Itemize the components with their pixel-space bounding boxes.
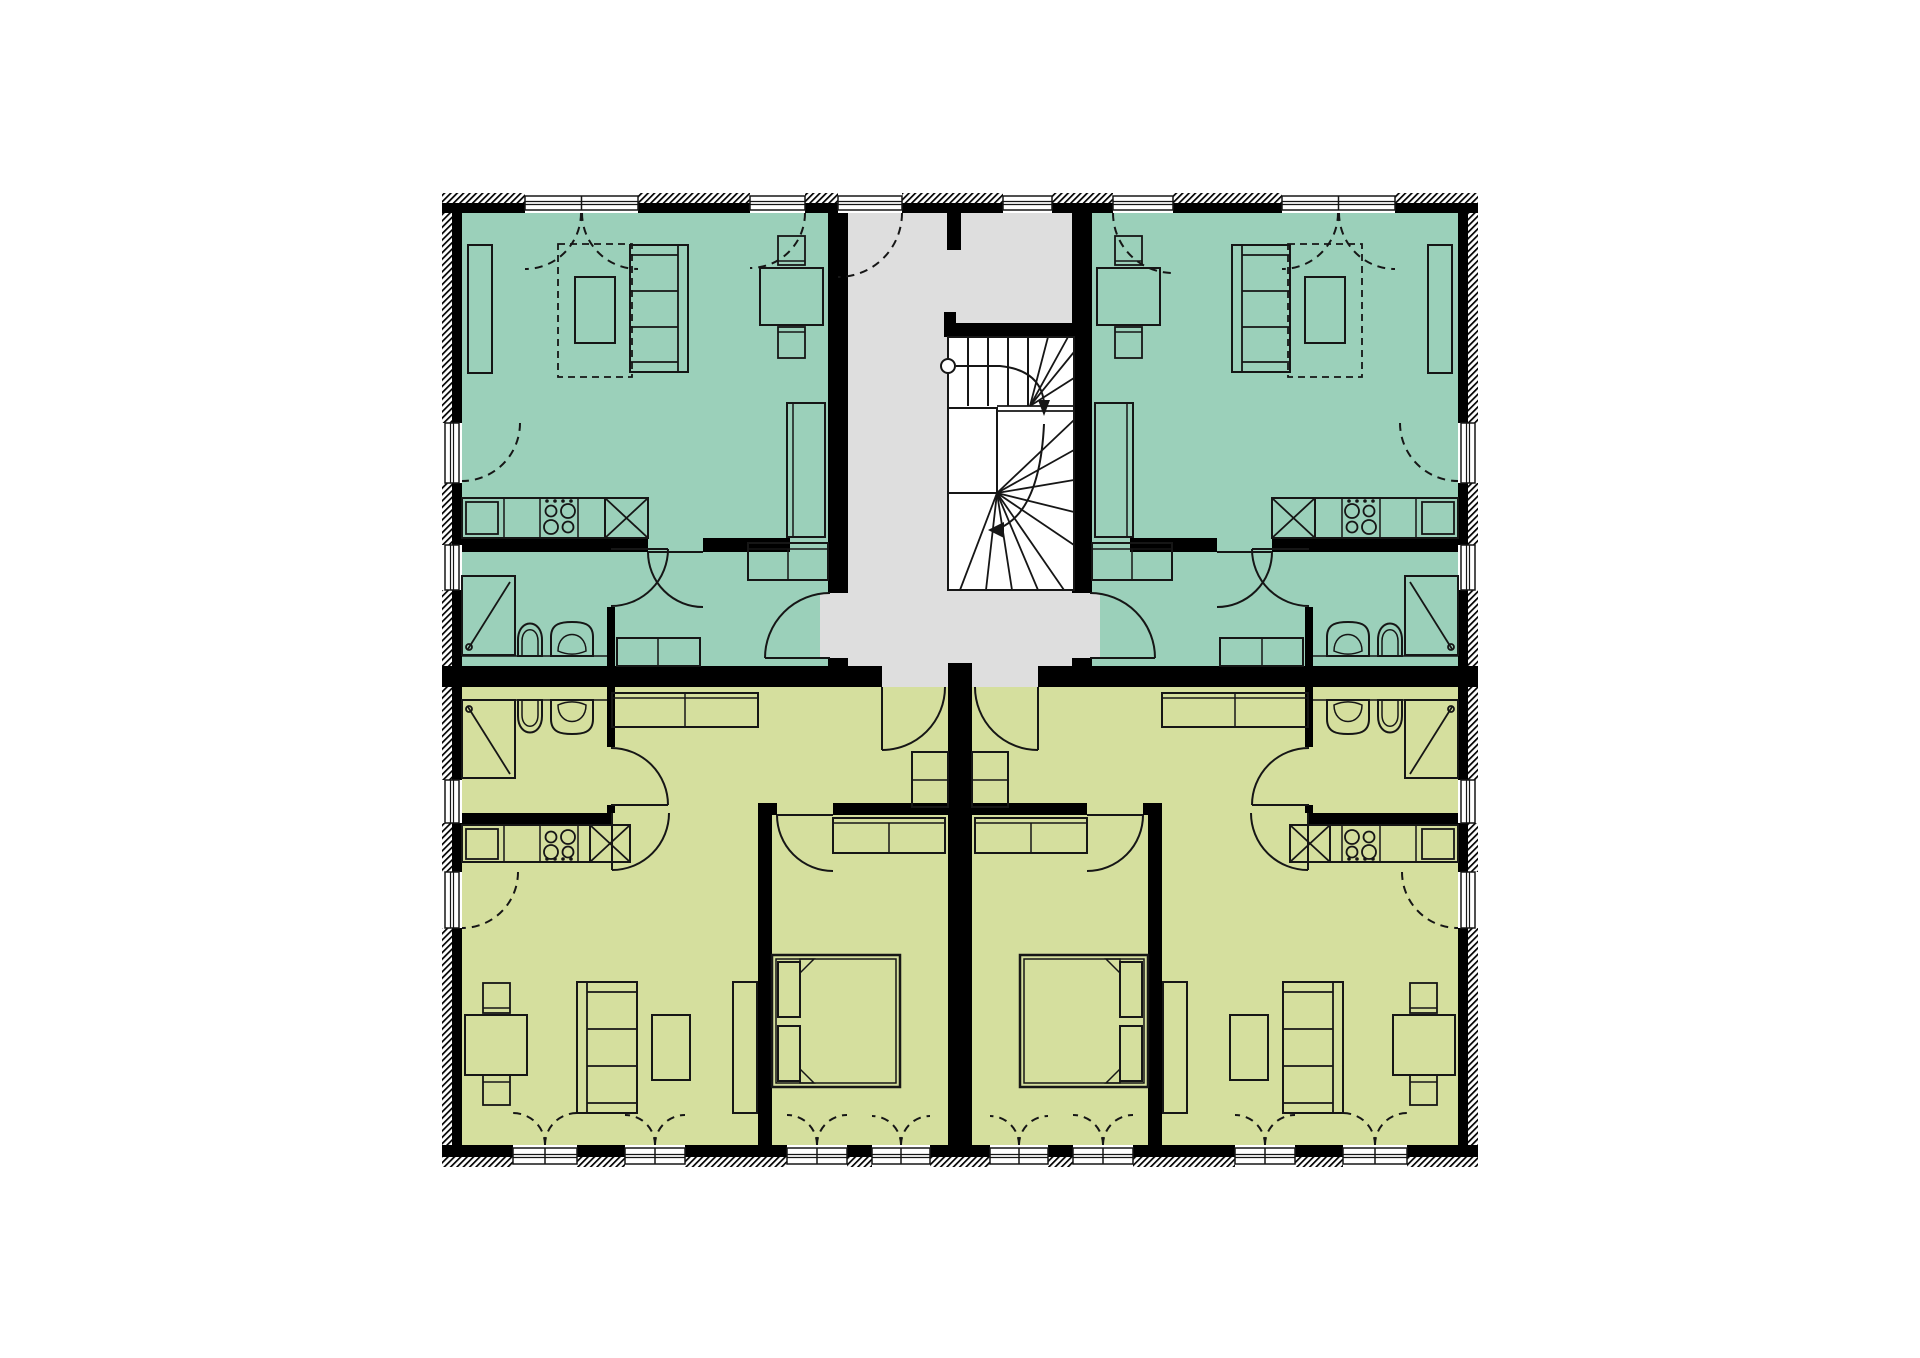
hatch-bottom xyxy=(685,1157,787,1167)
stair-top-wall xyxy=(948,323,1074,337)
wall-top xyxy=(1052,203,1113,213)
cooktop-knob xyxy=(1355,499,1359,503)
cooktop-knob xyxy=(561,857,565,861)
wall-bottom xyxy=(930,1145,990,1157)
central-partition xyxy=(948,663,972,1145)
bath-partition-top-left xyxy=(607,607,615,668)
hatch-bottom xyxy=(577,1157,625,1167)
wall-bottom xyxy=(577,1145,625,1157)
wall-right xyxy=(1458,483,1468,545)
wall-right xyxy=(1458,928,1468,1157)
wall-top xyxy=(1173,203,1282,213)
hatch-bottom xyxy=(1295,1157,1343,1167)
bath-partition-top-right xyxy=(1305,607,1313,668)
cooktop-knob xyxy=(545,499,549,503)
wall-top xyxy=(805,203,838,213)
hatch-top xyxy=(1395,193,1478,203)
bedroom-wall-bottom-right xyxy=(972,803,1087,815)
hatch-bottom xyxy=(1133,1157,1235,1167)
wall-bottom xyxy=(847,1145,872,1157)
stair-start-post xyxy=(941,359,955,373)
vestibule-stub-left xyxy=(848,666,882,687)
stairwell-wall-left xyxy=(828,213,848,593)
cooktop-knob xyxy=(553,857,557,861)
wall-right xyxy=(1458,203,1468,423)
room-apartment-bottom-right xyxy=(972,687,1458,1145)
cooktop-knob xyxy=(569,499,573,503)
hatch-top xyxy=(1052,193,1113,203)
plan-elements xyxy=(442,193,1478,1167)
hatch-bottom xyxy=(1048,1157,1073,1167)
cooktop-knob xyxy=(1371,857,1375,861)
stairwell-wall-left-stub xyxy=(828,658,848,666)
cooktop-knob xyxy=(561,499,565,503)
hatch-left xyxy=(442,823,452,872)
bath-partition-bottom-right-stub xyxy=(1305,805,1313,813)
wall-left xyxy=(452,823,462,872)
hatch-right xyxy=(1468,203,1478,423)
hatch-bottom xyxy=(847,1157,872,1167)
entrance-pier xyxy=(947,213,961,250)
hatch-top xyxy=(902,193,1003,203)
kitchen-wall-bottom-left xyxy=(462,813,612,825)
unit-divider-right xyxy=(1072,666,1478,687)
wall-top xyxy=(638,203,750,213)
hatch-top xyxy=(442,193,525,203)
stairwell-wall-right-stub xyxy=(1072,658,1092,666)
wall-bottom xyxy=(1295,1145,1343,1157)
wall-bottom xyxy=(1133,1145,1235,1157)
bedroom-wall-stub-bottom-right xyxy=(1143,803,1148,815)
hatch-right xyxy=(1468,483,1478,545)
wall-bottom xyxy=(1048,1145,1073,1157)
hatch-right xyxy=(1468,928,1478,1157)
hatch-left xyxy=(442,928,452,1157)
hatch-left xyxy=(442,483,452,545)
wall-left xyxy=(452,928,462,1157)
hall-wall-top-right xyxy=(1130,538,1217,552)
hatch-bottom xyxy=(930,1157,990,1167)
wall-right xyxy=(1458,823,1468,872)
floor-plan-drawing xyxy=(0,0,1920,1358)
cooktop-knob xyxy=(1347,857,1351,861)
unit-divider-left xyxy=(442,666,848,687)
hatch-bottom xyxy=(1407,1157,1478,1167)
bath-partition-bottom-left-stub xyxy=(607,805,615,813)
bedroom-partition-bottom-right xyxy=(1148,803,1162,1145)
room-stairwell-notch-left xyxy=(820,593,848,658)
floor-plan-page xyxy=(0,0,1920,1358)
hatch-top xyxy=(1173,193,1282,203)
bedroom-wall-stub-bottom-left xyxy=(772,803,777,815)
bedroom-wall-bottom-left xyxy=(833,803,948,815)
room-stairwell-notch-right xyxy=(1072,593,1100,658)
cooktop-knob xyxy=(569,857,573,861)
cooktop-knob xyxy=(1347,499,1351,503)
hatch-left xyxy=(442,203,452,423)
wall-left xyxy=(452,203,462,423)
cooktop-knob xyxy=(545,857,549,861)
cooktop-knob xyxy=(553,499,557,503)
wall-left xyxy=(452,483,462,545)
hatch-right xyxy=(1468,823,1478,872)
hall-wall-top-left xyxy=(703,538,790,552)
wall-top xyxy=(902,203,1003,213)
room-apartment-bottom-left xyxy=(462,687,948,1145)
cooktop-knob xyxy=(1355,857,1359,861)
wall-bottom xyxy=(685,1145,787,1157)
vestibule-stub-right xyxy=(1038,666,1072,687)
hatch-top xyxy=(638,193,750,203)
cooktop-knob xyxy=(1363,499,1367,503)
bedroom-partition-bottom-left xyxy=(758,803,772,1145)
hatch-top xyxy=(805,193,838,203)
hatch-bottom xyxy=(442,1157,513,1167)
cooktop-knob xyxy=(1371,499,1375,503)
kitchen-wall-bottom-right xyxy=(1308,813,1458,825)
cooktop-knob xyxy=(1363,857,1367,861)
